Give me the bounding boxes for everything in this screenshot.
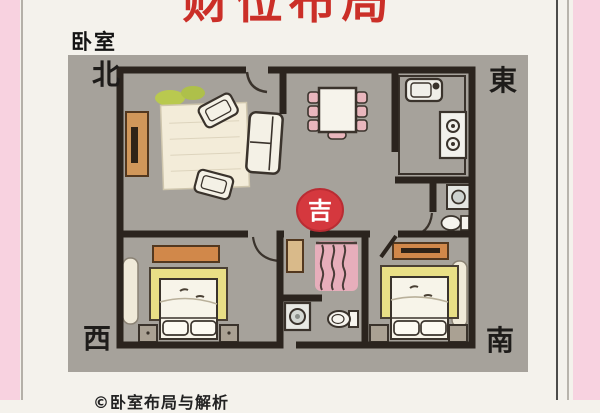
nightstand-knob bbox=[146, 331, 149, 334]
nightstand bbox=[449, 325, 467, 342]
plant-icon bbox=[155, 90, 185, 106]
poster: 财位布局 卧室 bbox=[0, 0, 600, 400]
right-card-edge-gray bbox=[567, 0, 569, 400]
dresser bbox=[393, 243, 448, 259]
tv-cabinet bbox=[126, 112, 148, 176]
footer-caption: ©卧室布局与解析 bbox=[93, 389, 229, 413]
dining-chair bbox=[356, 120, 367, 131]
sofa bbox=[246, 112, 283, 174]
bed bbox=[381, 266, 458, 339]
tv-icon bbox=[131, 127, 138, 163]
dining-set bbox=[308, 88, 367, 139]
stove-icon bbox=[440, 112, 466, 158]
compass-south: 南 bbox=[486, 324, 514, 357]
left-card-edge bbox=[21, 0, 23, 400]
nightstand-knob bbox=[227, 331, 230, 334]
pillow bbox=[421, 321, 446, 335]
dining-table bbox=[319, 88, 356, 132]
pillow bbox=[394, 321, 419, 335]
dining-chair bbox=[356, 106, 367, 117]
wardrobe bbox=[123, 258, 138, 324]
dining-chair bbox=[356, 92, 367, 103]
door-leaf bbox=[287, 240, 303, 272]
pillow bbox=[191, 321, 216, 335]
washing-machine-icon bbox=[447, 185, 470, 209]
floor-plan-svg: 吉 北 東 西 南 bbox=[68, 55, 528, 372]
auspicious-badge-text: 吉 bbox=[308, 197, 332, 225]
plant-icon bbox=[181, 86, 205, 100]
auspicious-badge: 吉 bbox=[297, 189, 343, 231]
shower-curtain bbox=[315, 241, 358, 291]
sink-icon bbox=[406, 79, 442, 101]
page-title: 财位布局 bbox=[20, 0, 557, 26]
compass-west: 西 bbox=[83, 322, 111, 355]
toilet-icon bbox=[442, 216, 470, 230]
corner-label-bedroom: 卧室 bbox=[71, 26, 117, 56]
pillow bbox=[163, 321, 188, 335]
compass-north: 北 bbox=[92, 58, 120, 91]
floor-plan: 吉 北 東 西 南 bbox=[68, 55, 528, 372]
washing-machine-icon bbox=[285, 303, 310, 330]
dining-chair bbox=[308, 106, 319, 117]
bed bbox=[150, 268, 227, 339]
toilet-icon bbox=[328, 311, 358, 327]
nightstand bbox=[370, 325, 388, 342]
dining-chair bbox=[308, 92, 319, 103]
dining-chair bbox=[308, 120, 319, 131]
dresser bbox=[153, 246, 219, 262]
right-card-edge-dark bbox=[556, 0, 558, 400]
right-pink-border bbox=[573, 0, 600, 400]
left-pink-border bbox=[0, 0, 20, 400]
compass-east: 東 bbox=[489, 64, 517, 97]
